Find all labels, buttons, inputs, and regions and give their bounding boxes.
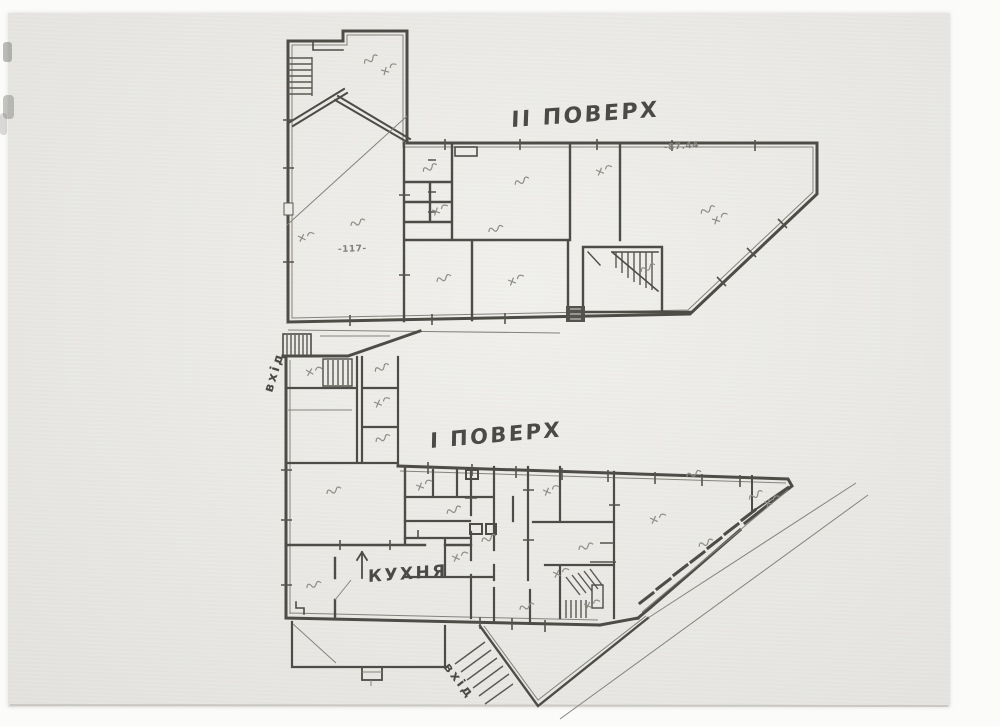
floor1-outer-walls	[283, 331, 792, 625]
floor2-plan: -87.44 -117- II ПОВЕРХ	[283, 31, 817, 336]
floor1-terrace	[455, 483, 868, 719]
floor2-dimension-left-wing: -117-	[338, 244, 367, 255]
floor1-kitchen-walls	[286, 467, 471, 618]
floor1-dimension-ticks	[281, 462, 740, 632]
floor1-title-label: I ПОВЕРХ	[430, 416, 562, 453]
floor2-left-wing-diagonal-walls	[284, 89, 410, 225]
floor1-entrance-staircase-left	[283, 334, 311, 356]
floor1-topleft-room-walls	[286, 357, 398, 466]
floor1-interior-staircase	[566, 569, 603, 618]
floor2-staircase-top-left	[288, 41, 343, 96]
entrance-bottom-label: вхід	[440, 660, 477, 702]
floor1-central-room-walls	[405, 467, 614, 622]
kitchen-label: КУХНЯ	[368, 561, 448, 587]
floor1-plan: I ПОВЕРХ КУХНЯ вхід вхід	[261, 331, 868, 719]
floor1-small-staircase-topleft	[323, 359, 352, 386]
floor2-staircase-bottom-right	[588, 252, 658, 291]
kitchen-arrow	[357, 552, 367, 578]
floor-plan-drawing: -87.44 -117- II ПОВЕРХ	[0, 0, 1000, 726]
floor1-outer-walls-inner-line	[290, 360, 788, 620]
floor2-outer-walls	[288, 31, 817, 322]
floor2-outer-walls-inner-line	[292, 35, 813, 318]
floor2-interior-walls	[404, 143, 690, 321]
floor2-dimension-top-right: -87.44	[664, 141, 700, 153]
floor2-central-room-notch	[455, 147, 477, 156]
floor2-sidewalk-line	[288, 330, 560, 336]
scanned-page-viewport: -87.44 -117- II ПОВЕРХ	[0, 0, 1000, 726]
floor1-diagonal-window-rungs	[640, 510, 755, 603]
entrance-left-label: вхід	[261, 350, 288, 394]
floor2-title-label: II ПОВЕРХ	[511, 98, 660, 133]
floor1-porch	[292, 622, 445, 686]
floor2-left-door	[284, 203, 293, 215]
